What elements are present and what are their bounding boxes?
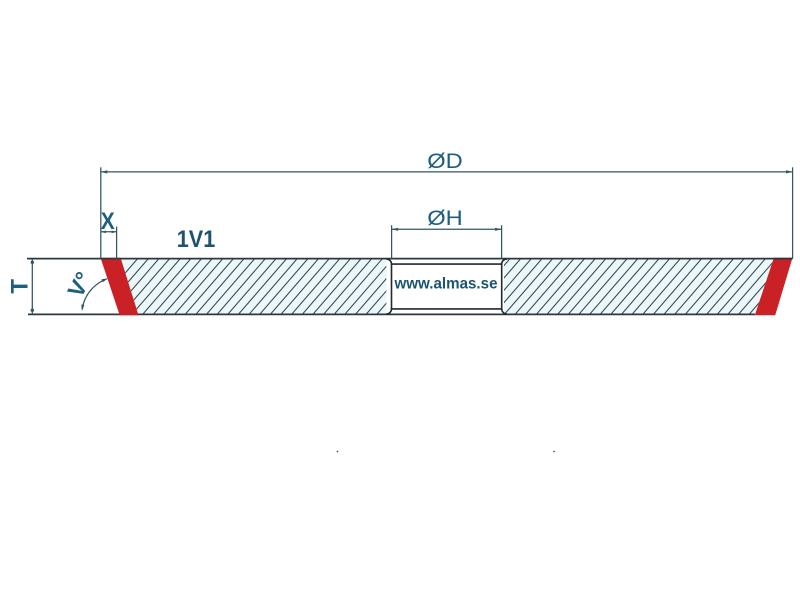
svg-text:X: X (101, 208, 115, 235)
svg-text:1V1: 1V1 (177, 226, 216, 253)
svg-text:T: T (6, 279, 33, 294)
svg-text:www.almas.se: www.almas.se (394, 276, 498, 293)
svg-text:ØD: ØD (427, 150, 463, 173)
svg-text:ØH: ØH (427, 207, 463, 230)
